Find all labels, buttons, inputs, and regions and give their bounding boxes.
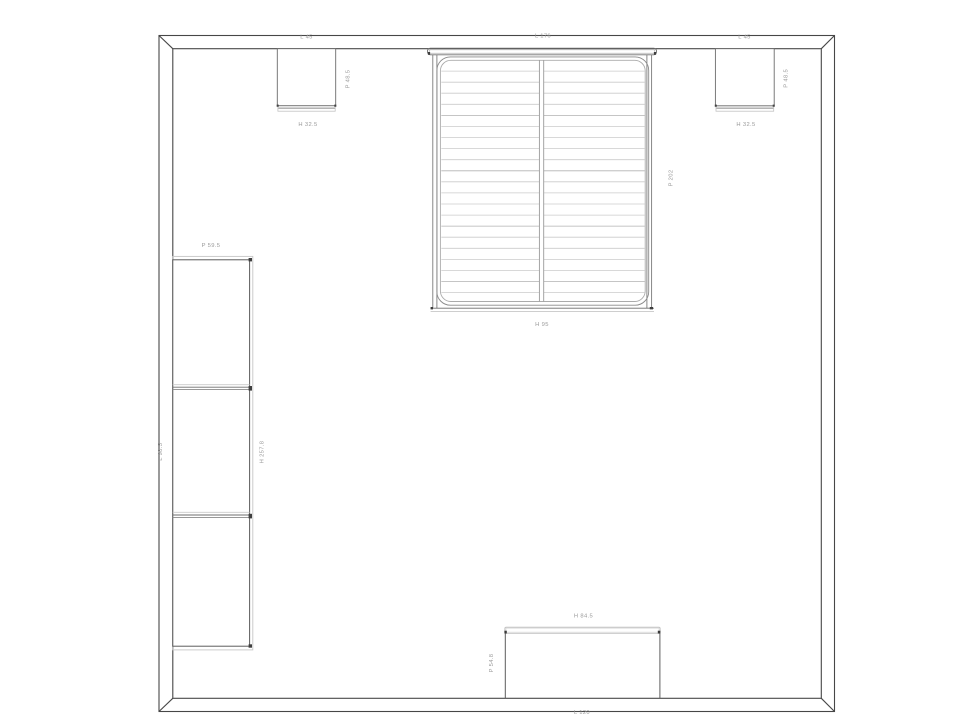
svg-text:H 84.5: H 84.5 [574,614,593,620]
svg-text:L 176: L 176 [535,34,551,40]
svg-text:H 95: H 95 [535,322,549,328]
svg-text:P 59.5: P 59.5 [202,243,221,249]
svg-text:L 45: L 45 [738,35,750,41]
svg-text:H 257.8: H 257.8 [260,441,266,464]
svg-text:P 202: P 202 [669,170,675,187]
svg-text:P 54.8: P 54.8 [489,654,495,673]
svg-text:P 48.5: P 48.5 [346,70,352,89]
svg-text:H 32.5: H 32.5 [736,122,755,128]
svg-text:L 98.5: L 98.5 [158,443,164,461]
svg-text:L 45: L 45 [300,35,312,41]
svg-text:H 32.5: H 32.5 [298,122,317,128]
svg-text:P 48.5: P 48.5 [784,69,790,88]
svg-text:L 120: L 120 [574,710,590,716]
